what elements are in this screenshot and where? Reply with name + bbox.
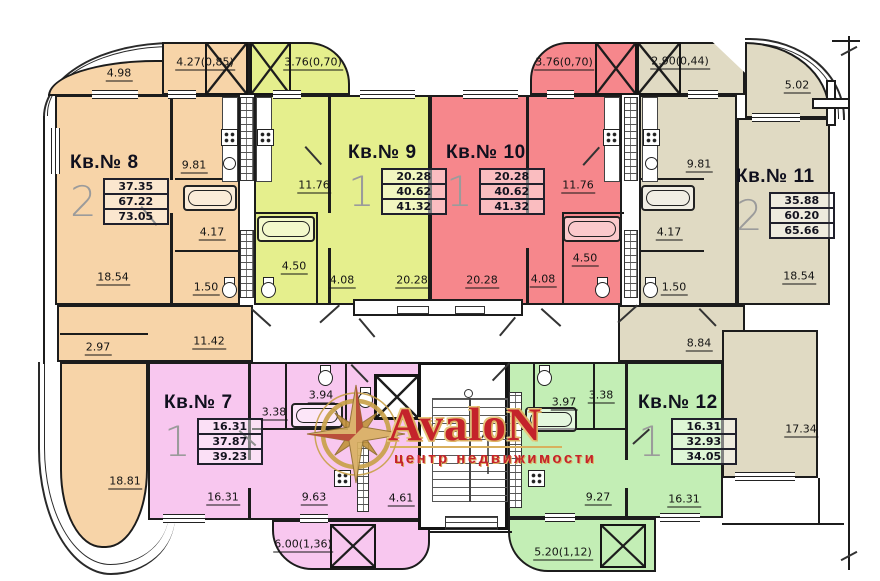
elevator-shaft xyxy=(374,374,420,420)
window xyxy=(688,90,718,99)
apartment-title: Кв.№ 11 xyxy=(736,166,835,188)
sink-icon xyxy=(223,157,236,170)
apt9-bath-wall-top xyxy=(254,212,318,214)
room-count: 1 xyxy=(164,421,191,463)
apartment-title: Кв.№ 9 xyxy=(348,142,447,164)
apartment-title: Кв.№ 10 xyxy=(446,142,545,164)
vent-shaft xyxy=(509,392,522,508)
dimension-label: 9.27 xyxy=(585,491,612,506)
window xyxy=(463,90,518,99)
apt7-room-wall-lower xyxy=(248,488,251,518)
stove-icon xyxy=(603,129,620,146)
stove-icon xyxy=(221,129,238,146)
apt8-kitchen-wall-upper xyxy=(170,95,173,180)
dimension-label: 18.81 xyxy=(108,475,142,490)
apt9-bath-wall-side xyxy=(316,212,318,303)
bathtub-icon xyxy=(525,407,577,432)
dimension-label: 2.90(0,44) xyxy=(650,55,710,70)
bathtub-icon xyxy=(291,403,343,428)
dimension-label: 4.27(0,85) xyxy=(175,56,235,71)
apt10-room-wall-lower xyxy=(526,248,529,305)
dimension-label: 20.28 xyxy=(465,274,499,289)
bathtub-icon xyxy=(183,185,237,211)
vestibule-door-right xyxy=(455,306,485,314)
total-area: 34.05 xyxy=(671,448,737,465)
dimension-label: 2.97 xyxy=(85,341,112,356)
watermark-rule xyxy=(390,446,562,448)
dimension-label: 1.50 xyxy=(661,281,688,296)
apt10-shaft-x-box xyxy=(595,42,637,95)
dimension-label: 4.50 xyxy=(281,260,308,275)
floor-plan: Кв.№ 8 2 37.35 67.22 73.05 Кв.№ 9 1 20.2… xyxy=(0,0,880,581)
window xyxy=(547,90,574,99)
dimension-label: 16.31 xyxy=(206,491,240,506)
stove-icon xyxy=(334,470,351,487)
bathtub-icon xyxy=(257,216,315,242)
toilet-icon xyxy=(222,277,237,298)
apt11-kitchen-wall-lower xyxy=(735,248,738,305)
dimension-label: 16.31 xyxy=(667,493,701,508)
total-area: 41.32 xyxy=(381,198,447,215)
vestibule-door-swing-left xyxy=(358,318,375,338)
apt10-info-block: Кв.№ 10 1 20.28 40.62 41.32 xyxy=(446,142,545,215)
dimension-label: 3.76(0,70) xyxy=(283,56,343,71)
window xyxy=(51,128,60,174)
dimension-label: 1.50 xyxy=(193,281,220,296)
dimension-label: 11.76 xyxy=(297,179,331,194)
dimension-label: 4.61 xyxy=(388,492,415,507)
toilet-icon xyxy=(261,277,276,298)
bottom-right-step-wall xyxy=(722,523,844,525)
apartment-title: Кв.№ 12 xyxy=(638,392,737,414)
dimension-label: 5.20(1,12) xyxy=(533,546,593,561)
apt8-entry-door xyxy=(251,308,272,327)
apartment-title: Кв.№ 7 xyxy=(164,392,263,414)
window xyxy=(163,514,205,523)
dimension-label: 17.34 xyxy=(784,423,818,438)
dimension-label: 4.17 xyxy=(656,226,683,241)
apt8-wc-wall xyxy=(175,250,239,252)
dimension-label: 4.08 xyxy=(329,274,356,289)
apartment-title: Кв.№ 8 xyxy=(70,152,169,174)
outer-wall-right xyxy=(848,36,850,570)
apt11-wc-wall xyxy=(640,250,704,252)
room-count: 1 xyxy=(446,171,473,213)
dimension-label: 9.63 xyxy=(301,491,328,506)
window xyxy=(752,113,800,122)
vestibule-door-swing-right xyxy=(499,317,516,337)
window xyxy=(300,514,328,523)
toilet-icon xyxy=(643,277,658,298)
window xyxy=(735,472,795,481)
total-area: 39.23 xyxy=(197,448,263,465)
dimension-label: 3.38 xyxy=(588,389,615,404)
toilet-icon xyxy=(318,365,333,386)
toilet-icon xyxy=(537,365,552,386)
window xyxy=(273,90,301,99)
window xyxy=(660,513,700,522)
dimension-label: 20.28 xyxy=(395,274,429,289)
bottom-right-side-wall xyxy=(818,478,820,525)
dimension-label: 18.54 xyxy=(782,270,816,285)
window xyxy=(545,513,575,522)
entrance-wall xyxy=(428,531,512,533)
entrance-steps xyxy=(445,516,498,530)
apt11-info-block: Кв.№ 11 2 35.88 60.20 65.66 xyxy=(736,166,835,239)
stair-handrail-post xyxy=(464,389,473,398)
dimension-label: 11.76 xyxy=(561,179,595,194)
stove-icon xyxy=(643,129,660,146)
dimension-label: 3.97 xyxy=(551,396,578,411)
apt9-entry-door xyxy=(319,305,340,324)
apt9-info-block: Кв.№ 9 1 20.28 40.62 41.32 xyxy=(348,142,447,215)
entrance-vestibule xyxy=(353,299,523,316)
apt10-entry-door xyxy=(541,308,562,327)
apt12-info-block: Кв.№ 12 1 16.31 32.93 34.05 xyxy=(638,392,737,465)
window xyxy=(92,90,138,99)
apt12-balcony-x-box xyxy=(600,524,646,568)
dimension-label: 18.54 xyxy=(96,271,130,286)
toilet-icon xyxy=(358,387,373,408)
dimension-label: 6.00(1,36) xyxy=(273,538,333,553)
bathtub-icon xyxy=(641,185,695,211)
room-count: 1 xyxy=(638,421,665,463)
apt7-balcony-x-box xyxy=(330,524,376,568)
staircase-divider xyxy=(469,398,471,502)
room-count: 2 xyxy=(736,195,763,237)
apt8-bay-wall xyxy=(60,333,148,335)
bathtub-icon xyxy=(563,216,621,242)
dimension-label: 3.94 xyxy=(308,389,335,404)
stove-icon xyxy=(528,470,545,487)
outer-wall-top-right-ext xyxy=(832,40,860,42)
dimension-label: 4.98 xyxy=(106,67,133,82)
dimension-label: 11.42 xyxy=(192,335,226,350)
dimension-label: 4.50 xyxy=(572,252,599,267)
vent-shaft xyxy=(624,97,638,181)
apt7-info-block: Кв.№ 7 1 16.31 37.87 39.23 xyxy=(164,392,263,465)
total-area: 73.05 xyxy=(103,208,169,225)
vent-shaft xyxy=(624,230,638,298)
sink-icon xyxy=(645,157,658,170)
apt12-room-wall-lower xyxy=(625,488,628,518)
pier-horizontal xyxy=(812,98,850,109)
dimension-label: 5.02 xyxy=(784,79,811,94)
dimension-label: 4.08 xyxy=(530,273,557,288)
apt7-bath-wall-right xyxy=(345,362,347,430)
vent-shaft xyxy=(357,442,369,512)
dimension-label: 9.81 xyxy=(686,158,713,173)
outer-wall-left xyxy=(43,116,45,364)
total-area: 65.66 xyxy=(769,222,835,239)
dimension-label: 9.81 xyxy=(181,159,208,174)
dimension-label: 8.84 xyxy=(686,337,713,352)
apt8-room2-region xyxy=(60,362,148,548)
dimension-label: 3.76(0,70) xyxy=(534,56,594,71)
dimension-label: 3.38 xyxy=(261,406,288,421)
total-area: 41.32 xyxy=(479,198,545,215)
room-count: 1 xyxy=(348,171,375,213)
apt8-kitchen-wall-lower xyxy=(170,213,173,305)
apt9-room-wall-upper xyxy=(328,95,331,213)
dimension-label: 4.17 xyxy=(199,226,226,241)
vent-shaft xyxy=(240,97,254,181)
window xyxy=(168,90,196,99)
window xyxy=(360,90,415,99)
apt7-kitchen-wall xyxy=(252,428,348,430)
stove-icon xyxy=(257,129,274,146)
vent-shaft xyxy=(240,230,254,298)
apt12-room-wall-upper xyxy=(625,362,628,460)
room-count: 2 xyxy=(70,181,97,223)
toilet-icon xyxy=(595,277,610,298)
apt10-bath-wall-top xyxy=(562,212,624,214)
vestibule-door-left xyxy=(397,306,429,314)
stair-direction-arrow xyxy=(478,422,498,478)
apt8-info-block: Кв.№ 8 2 37.35 67.22 73.05 xyxy=(70,152,169,225)
